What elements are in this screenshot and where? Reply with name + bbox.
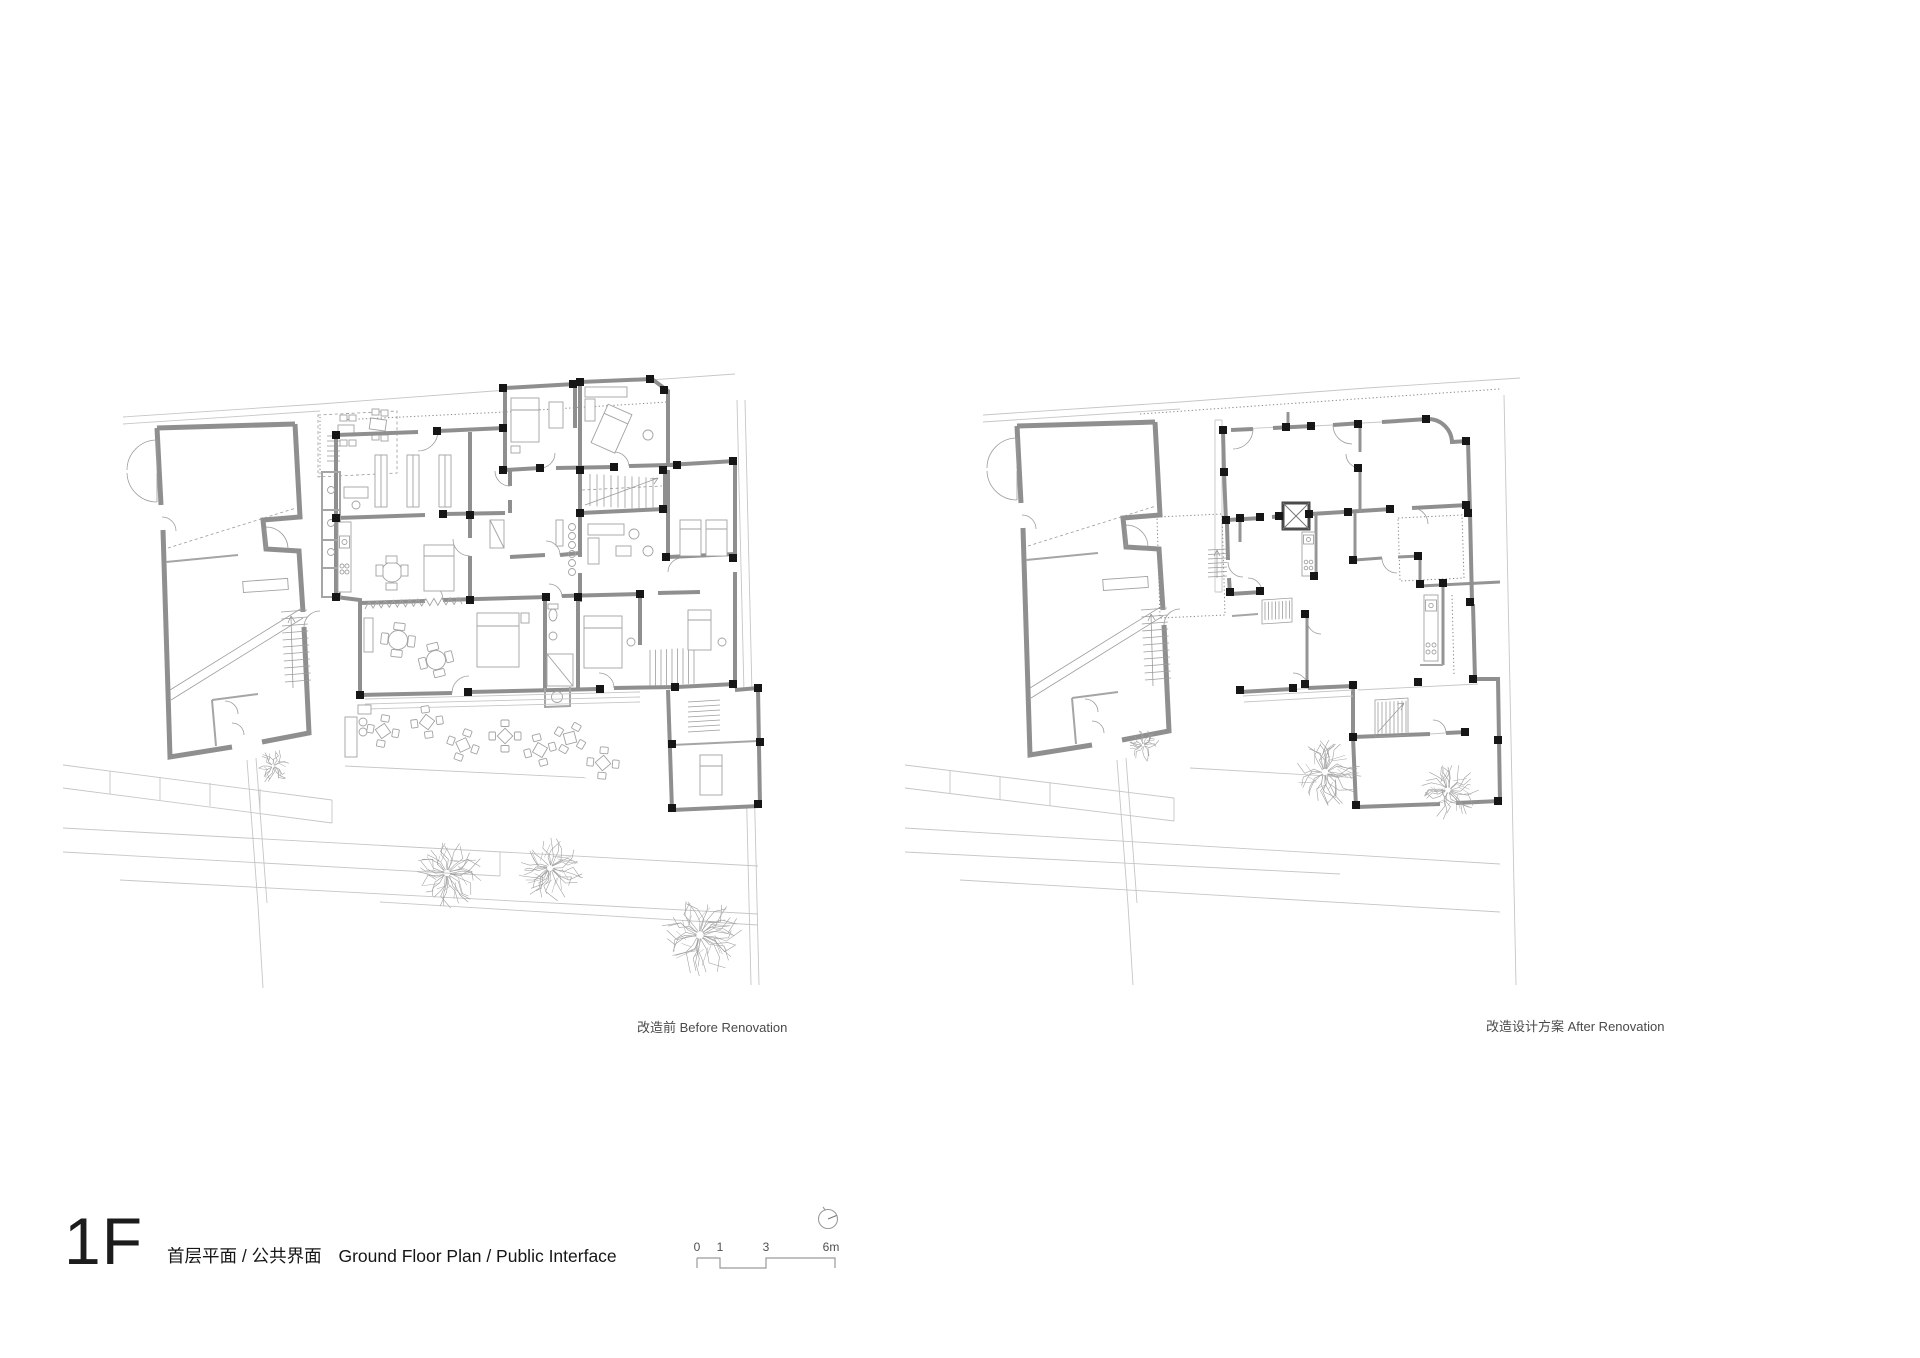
subtitle-en: Ground Floor Plan / Public Interface: [338, 1246, 616, 1266]
sheet-subtitle: 首层平面 / 公共界面 Ground Floor Plan / Public I…: [167, 1246, 617, 1266]
scale-label-1: 1: [717, 1240, 724, 1254]
caption-before: 改造前 Before Renovation: [637, 1020, 787, 1035]
scale-bar: 0 1 3 6m: [694, 1240, 840, 1268]
stair-west: [1208, 549, 1227, 577]
plan-sheet: 改造前 Before Renovation: [0, 0, 1920, 1358]
scale-label-3: 3: [763, 1240, 770, 1254]
scale-label-6m: 6m: [823, 1240, 840, 1254]
floor-plan-after: 改造设计方案 After Renovation: [905, 378, 1664, 1034]
subtitle-zh: 首层平面 / 公共界面: [167, 1246, 322, 1266]
floor-label: 1F: [64, 1204, 143, 1278]
scale-label-0: 0: [694, 1240, 701, 1254]
kitchen-counter-1: [1302, 532, 1315, 576]
kitchen-counter-2: [1424, 595, 1438, 661]
floor-plan-before: 改造前 Before Renovation: [63, 374, 787, 1035]
site-plan-drawing: 改造前 Before Renovation: [0, 0, 1920, 1358]
neighbor-building-after: [987, 422, 1180, 755]
north-arrow-icon: [819, 1207, 838, 1229]
neighbor-building: [127, 424, 320, 757]
caption-after: 改造设计方案 After Renovation: [1486, 1019, 1664, 1034]
main-building-after: [1140, 389, 1502, 810]
title-block: 1F 首层平面 / 公共界面 Ground Floor Plan / Publi…: [64, 1204, 617, 1278]
